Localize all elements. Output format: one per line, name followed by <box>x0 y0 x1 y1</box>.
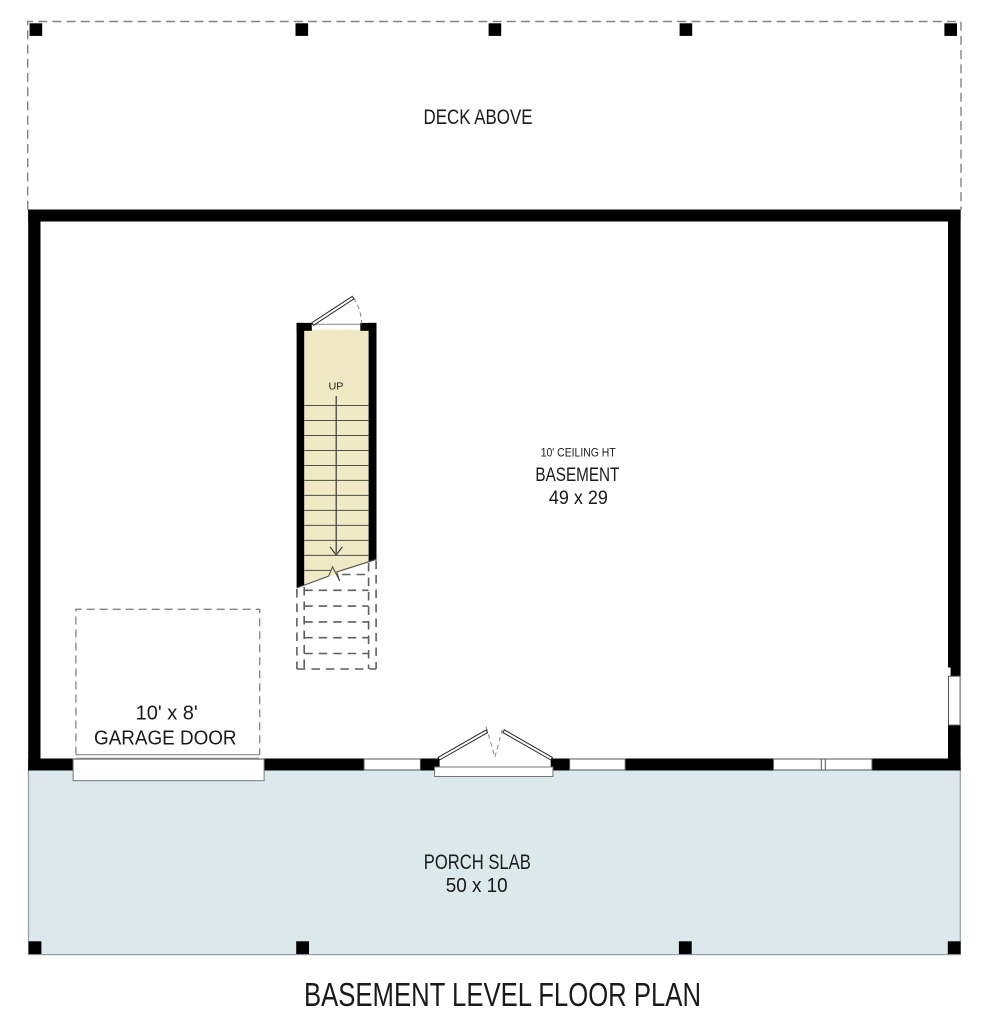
svg-text:PORCH SLAB: PORCH SLAB <box>424 851 531 874</box>
svg-text:BASEMENT LEVEL FLOOR PLAN: BASEMENT LEVEL FLOOR PLAN <box>304 976 701 1013</box>
svg-text:GARAGE DOOR: GARAGE DOOR <box>94 728 237 750</box>
svg-text:BASEMENT: BASEMENT <box>535 465 619 486</box>
svg-text:10' x 8': 10' x 8' <box>136 703 198 725</box>
svg-text:50 x 10: 50 x 10 <box>446 875 508 897</box>
svg-text:10' CEILING HT: 10' CEILING HT <box>541 448 616 460</box>
svg-text:DECK ABOVE: DECK ABOVE <box>424 106 533 129</box>
svg-text:49 x 29: 49 x 29 <box>549 488 608 509</box>
svg-text:UP: UP <box>329 381 344 393</box>
